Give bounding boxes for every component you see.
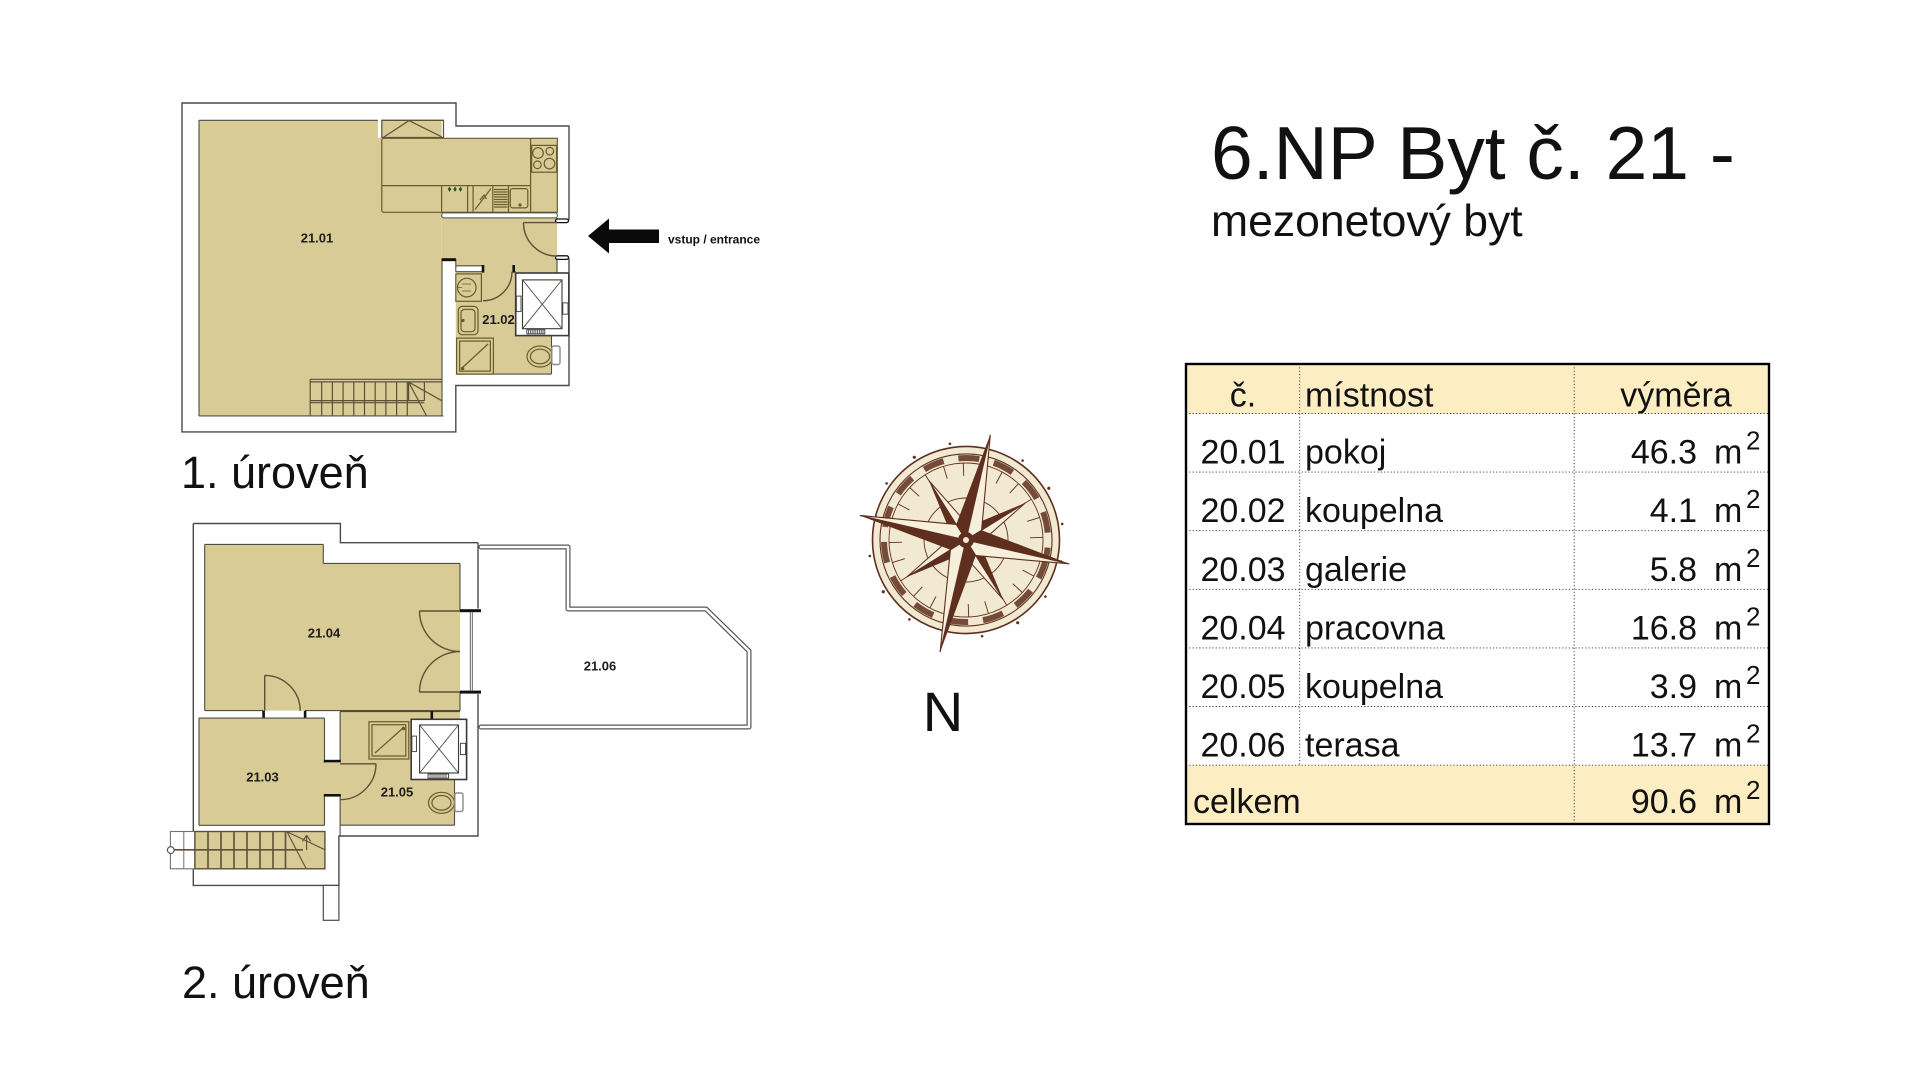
svg-text:terasa: terasa <box>1305 727 1400 765</box>
svg-text:2: 2 <box>1746 543 1760 573</box>
svg-text:2: 2 <box>1746 601 1760 631</box>
svg-text:2. úroveň: 2. úroveň <box>182 957 370 1008</box>
svg-text:46.3: 46.3 <box>1631 434 1697 472</box>
svg-text:m: m <box>1714 783 1742 821</box>
svg-text:5.8: 5.8 <box>1650 551 1697 589</box>
svg-text:pokoj: pokoj <box>1305 434 1386 472</box>
svg-text:20.05: 20.05 <box>1200 668 1285 706</box>
svg-text:21.03: 21.03 <box>246 770 279 785</box>
svg-text:m: m <box>1714 668 1742 706</box>
svg-text:N: N <box>923 680 963 743</box>
svg-text:20.04: 20.04 <box>1200 609 1285 647</box>
svg-text:2: 2 <box>1746 426 1760 456</box>
svg-text:2: 2 <box>1746 775 1760 805</box>
svg-text:koupelna: koupelna <box>1305 668 1443 706</box>
svg-text:1. úroveň: 1. úroveň <box>181 447 369 498</box>
svg-text:16.8: 16.8 <box>1631 609 1697 647</box>
svg-text:vstup / entrance: vstup / entrance <box>668 233 760 247</box>
svg-text:4.1: 4.1 <box>1650 492 1697 530</box>
svg-text:č.: č. <box>1230 377 1256 415</box>
svg-text:21.02: 21.02 <box>482 312 515 327</box>
svg-text:20.06: 20.06 <box>1200 727 1285 765</box>
svg-text:6.NP Byt č. 21 -: 6.NP Byt č. 21 - <box>1211 111 1735 195</box>
svg-text:mezonetový byt: mezonetový byt <box>1211 197 1523 246</box>
svg-text:20.01: 20.01 <box>1200 434 1285 472</box>
svg-text:2: 2 <box>1746 719 1760 749</box>
svg-text:celkem: celkem <box>1193 783 1301 821</box>
svg-text:galerie: galerie <box>1305 551 1407 589</box>
svg-text:3.9: 3.9 <box>1650 668 1697 706</box>
svg-text:20.03: 20.03 <box>1200 551 1285 589</box>
svg-text:m: m <box>1714 434 1742 472</box>
svg-text:21.05: 21.05 <box>381 785 414 800</box>
svg-text:m: m <box>1714 551 1742 589</box>
svg-text:výměra: výměra <box>1620 377 1732 415</box>
svg-text:m: m <box>1714 727 1742 765</box>
svg-text:21.04: 21.04 <box>308 626 341 641</box>
svg-text:2: 2 <box>1746 484 1760 514</box>
svg-text:13.7: 13.7 <box>1631 727 1697 765</box>
svg-text:90.6: 90.6 <box>1631 783 1697 821</box>
svg-text:21.01: 21.01 <box>301 231 334 246</box>
svg-text:místnost: místnost <box>1305 377 1434 415</box>
svg-text:koupelna: koupelna <box>1305 492 1443 530</box>
svg-text:21.06: 21.06 <box>584 659 617 674</box>
svg-text:m: m <box>1714 609 1742 647</box>
svg-text:2: 2 <box>1746 660 1760 690</box>
svg-text:pracovna: pracovna <box>1305 609 1445 647</box>
svg-text:20.02: 20.02 <box>1200 492 1285 530</box>
svg-text:m: m <box>1714 492 1742 530</box>
